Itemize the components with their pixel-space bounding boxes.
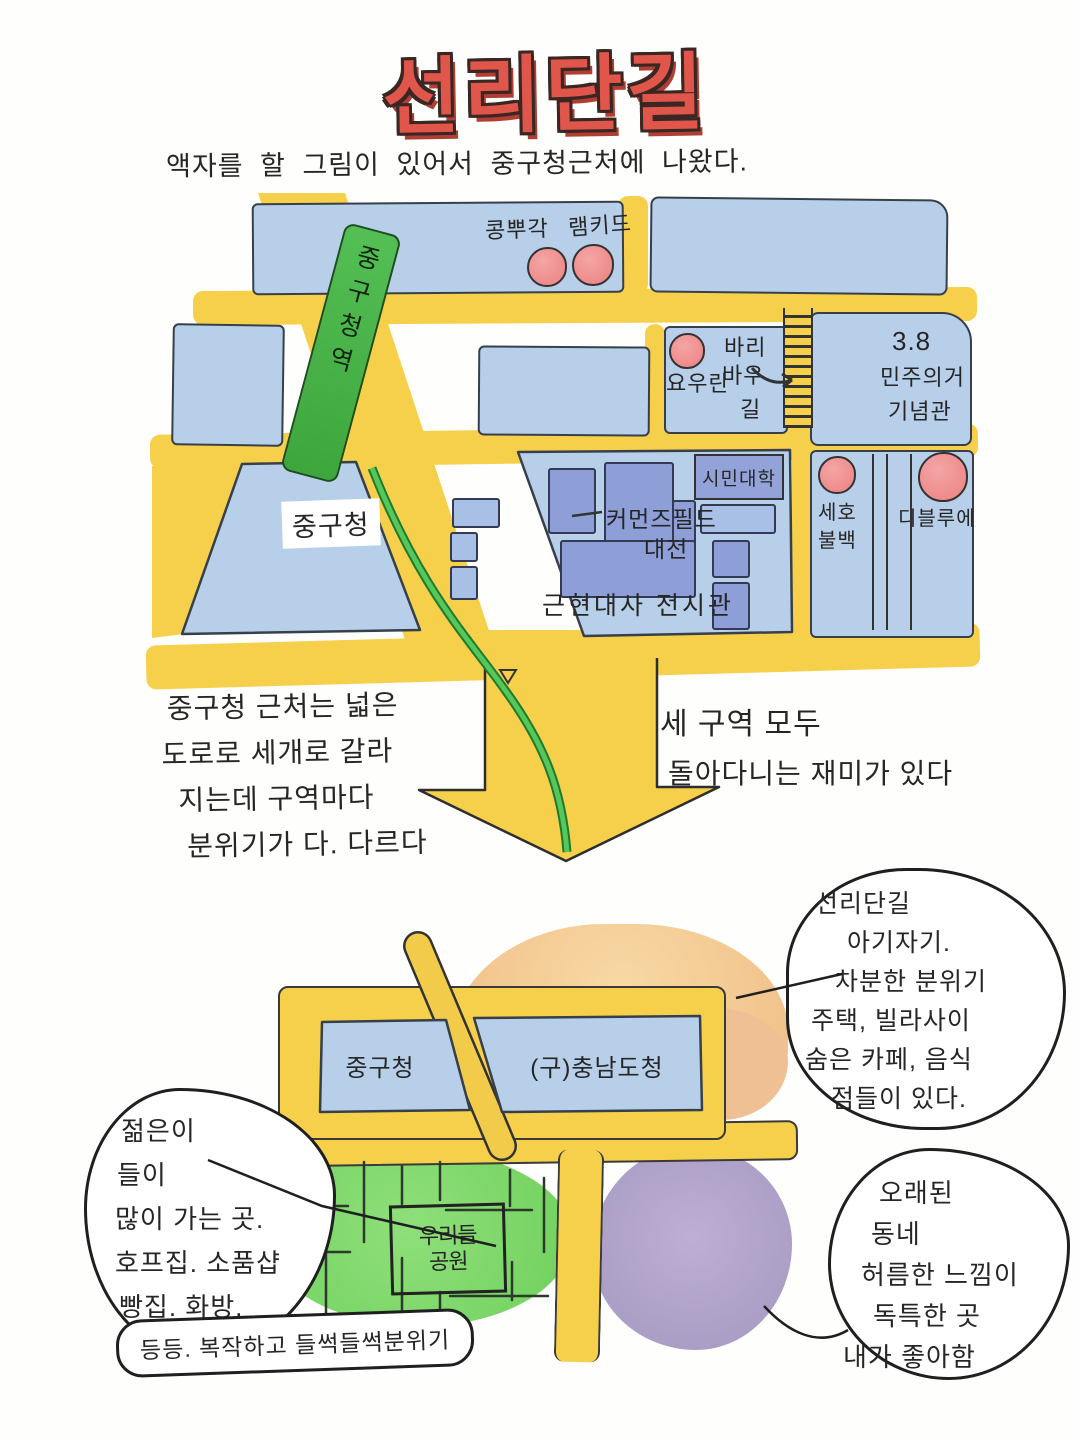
gu-office-label-bottom: 중구청 (330, 1048, 430, 1083)
gu-office-label-top: 중구청 (281, 498, 380, 548)
building (712, 540, 750, 578)
provincial-office-label: (구)충남도청 (502, 1048, 692, 1083)
dbleue-label: 디블루에 (898, 502, 976, 531)
bubble-line: 숨은 카페, 음식 (789, 1041, 1063, 1080)
bubble-line: 독특한 곳 (831, 1296, 1067, 1337)
shop-label-kongbbugak: 콩뿌각 (484, 211, 549, 245)
shop-dot-dbleue (918, 452, 968, 502)
bubble-seonridan: 선리단길 아기자기. 차분한 분위기 주택, 빌라사이 숨은 카페, 음식 점들… (786, 868, 1066, 1130)
journal-page: 선리단길 액자를 할 그림이 있어서 중구청근처에 나왔다. (0, 0, 1080, 1440)
bubble-line: 젊은이 (115, 1109, 333, 1153)
seho-label-2: 불백 (818, 524, 857, 553)
page-title: 선리단길 (329, 24, 761, 152)
note-left-line: 중구청 근처는 넓은 (160, 682, 425, 733)
memorial-label-1: 3.8 (892, 326, 931, 357)
baribau-street-ladder (783, 308, 813, 428)
bubble-line: 호프집. 소품샵 (115, 1241, 333, 1285)
building (452, 498, 500, 528)
bubble-line: 차분한 분위기 (789, 963, 1063, 1002)
street-label-bau: 바우 (722, 358, 764, 390)
note-left-line: 지는데 구역마다 (162, 774, 427, 825)
shop-dot-kongbbugak (527, 247, 567, 287)
shop-dot-seho (818, 456, 856, 494)
bubble-line: 들이 (115, 1153, 333, 1197)
park-label-box: 우리들 공원 (389, 1202, 507, 1295)
note-left-line: 도로로 세개로 갈라 (161, 728, 426, 779)
bubble-line: 많이 가는 곳. (115, 1197, 333, 1241)
shop-label-youran: 요우란 (666, 366, 730, 398)
strip-street-line (886, 454, 888, 630)
block-top-right (650, 196, 949, 295)
memorial-label-3: 기념관 (888, 394, 952, 426)
building (450, 566, 478, 600)
commons-label-1: 커먼즈필드 (606, 500, 717, 534)
bubble-line: 동네 (831, 1214, 1067, 1255)
bubble-young-tail-lobe: 등등. 복작하고 들썩들썩분위기 (115, 1308, 475, 1378)
note-right-line: 세 구역 모두 (652, 700, 953, 750)
bubble-line: 등등. 복작하고 들썩들썩분위기 (139, 1321, 450, 1366)
museum-label: 근현대사 전시관 (542, 586, 734, 622)
note-left-line: 분위기가 다. 다르다 (163, 820, 428, 871)
building (548, 468, 596, 534)
memorial-label-2: 민주의거 (880, 360, 965, 392)
shop-label-ramkid: 램키드 (567, 206, 633, 242)
seho-label-1: 세호 (818, 496, 857, 525)
note-right-line: 돌아다니는 재미가 있다 (652, 750, 953, 798)
road-bottom-vertical (554, 1150, 604, 1363)
citizen-college-badge: 시민대학 (694, 454, 784, 500)
park-label-2: 공원 (429, 1248, 468, 1275)
bubble-line: 내가 좋아함 (831, 1337, 1067, 1378)
bubble-line: 오래된 (831, 1173, 1067, 1214)
park-label-1: 우리들 (418, 1222, 476, 1250)
bubble-line: 허름한 느낌이 (831, 1255, 1067, 1296)
building (450, 532, 478, 562)
bubble-line: 아기자기. (789, 924, 1063, 963)
bubble-old-town: 오래된 동네 허름한 느낌이 독특한 곳 내가 좋아함 (828, 1148, 1070, 1380)
block-left-sliver (171, 323, 285, 447)
shop-dot-ramkid (572, 244, 614, 286)
street-label-gil: 길 (740, 392, 761, 424)
block-middle-empty (478, 345, 651, 436)
citizen-college-label: 시민대학 (702, 464, 776, 491)
page-subtitle: 액자를 할 그림이 있어서 중구청근처에 나왔다. (166, 139, 748, 183)
note-right: 세 구역 모두 돌아다니는 재미가 있다 (652, 700, 953, 798)
bubble-line: 선리단길 (789, 885, 1063, 924)
note-left: 중구청 근처는 넓은 도로로 세개로 갈라 지는데 구역마다 분위기가 다. 다… (160, 682, 428, 871)
strip-street-line (910, 454, 912, 630)
old-town-area-purple (592, 1146, 792, 1350)
commons-label-2: 대전 (644, 530, 688, 564)
bubble-line: 점들이 있다. (789, 1080, 1063, 1119)
strip-street-line (872, 454, 874, 630)
bubble-line: 주택, 빌라사이 (789, 1002, 1063, 1041)
shop-dot-youran (669, 333, 705, 369)
